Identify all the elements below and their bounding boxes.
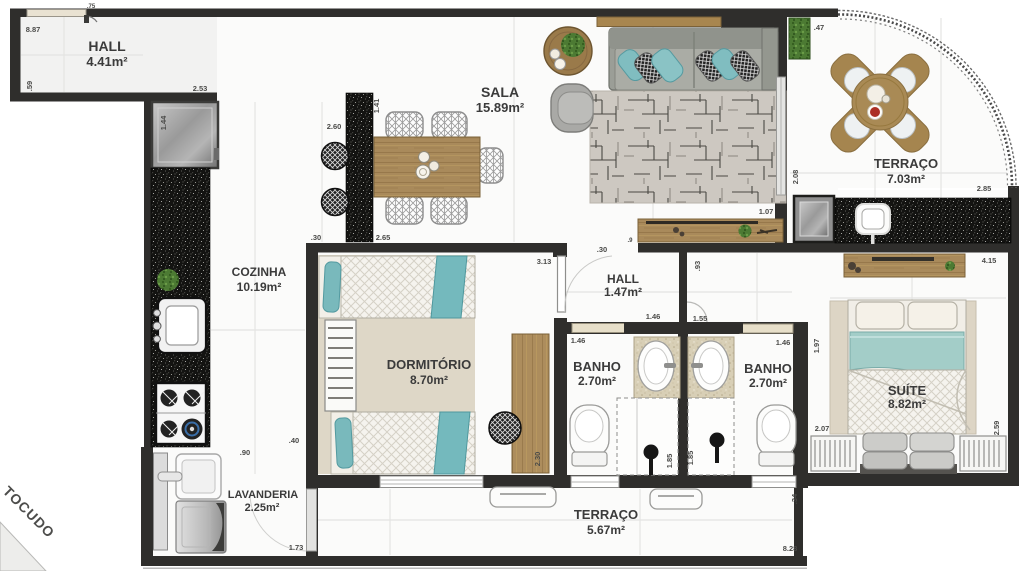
svg-text:LAVANDERIA: LAVANDERIA: [228, 489, 299, 501]
svg-text:2.30: 2.30: [533, 452, 542, 467]
svg-text:2.25m²: 2.25m²: [245, 502, 280, 514]
svg-text:1.85: 1.85: [665, 454, 674, 469]
svg-text:.30: .30: [311, 233, 321, 242]
svg-text:TERRAÇO: TERRAÇO: [874, 156, 938, 171]
svg-text:.47: .47: [814, 23, 824, 32]
svg-text:1.44: 1.44: [159, 115, 168, 130]
svg-text:2.07: 2.07: [815, 424, 830, 433]
svg-text:BANHO: BANHO: [744, 361, 792, 376]
svg-text:SALA: SALA: [481, 84, 519, 100]
svg-text:.30: .30: [597, 245, 607, 254]
svg-text:2.08: 2.08: [791, 170, 800, 185]
svg-text:10.19m²: 10.19m²: [237, 280, 282, 294]
svg-text:.93: .93: [693, 261, 702, 271]
svg-text:4.41m²: 4.41m²: [86, 54, 128, 69]
svg-text:1.97: 1.97: [812, 339, 821, 354]
svg-text:2.70m²: 2.70m²: [749, 376, 787, 390]
svg-text:1.41: 1.41: [372, 99, 381, 114]
svg-text:1.85: 1.85: [686, 451, 695, 466]
svg-text:1.46: 1.46: [571, 336, 586, 345]
svg-text:DORMITÓRIO: DORMITÓRIO: [387, 357, 472, 372]
svg-text:COZINHA: COZINHA: [232, 265, 287, 279]
svg-text:BANHO: BANHO: [573, 359, 621, 374]
svg-text:1.73: 1.73: [289, 543, 304, 552]
svg-text:2.85: 2.85: [977, 184, 992, 193]
svg-text:2.70m²: 2.70m²: [578, 374, 616, 388]
svg-text:1.47m²: 1.47m²: [604, 285, 642, 299]
svg-text:5.67m²: 5.67m²: [587, 523, 625, 537]
svg-text:1.55: 1.55: [693, 314, 708, 323]
svg-text:.90: .90: [240, 448, 250, 457]
svg-text:1.46: 1.46: [646, 312, 661, 321]
svg-text:8.87: 8.87: [26, 25, 41, 34]
svg-text:.40: .40: [289, 436, 299, 445]
svg-text:.9: .9: [627, 238, 633, 244]
svg-text:4.15: 4.15: [982, 256, 997, 265]
svg-text:.75: .75: [87, 4, 96, 10]
svg-text:1.46: 1.46: [776, 338, 791, 347]
svg-text:2.53: 2.53: [193, 84, 208, 93]
svg-text:3.13: 3.13: [537, 257, 552, 266]
svg-text:2.60: 2.60: [327, 122, 342, 131]
svg-text:HALL: HALL: [88, 38, 126, 54]
svg-text:TERRAÇO: TERRAÇO: [574, 507, 638, 522]
svg-text:SUÍTE: SUÍTE: [888, 383, 927, 398]
svg-text:7.03m²: 7.03m²: [887, 172, 925, 186]
svg-text:.59: .59: [25, 81, 34, 91]
svg-text:8.28: 8.28: [783, 544, 798, 553]
svg-text:HALL: HALL: [607, 272, 639, 286]
svg-text:1.07: 1.07: [759, 207, 774, 216]
svg-text:8.82m²: 8.82m²: [888, 397, 926, 411]
svg-text:15.89m²: 15.89m²: [476, 100, 525, 115]
svg-text:2.65: 2.65: [376, 233, 391, 242]
svg-text:2.59: 2.59: [992, 421, 1001, 436]
svg-text:.34: .34: [790, 493, 799, 504]
svg-text:8.70m²: 8.70m²: [410, 373, 448, 387]
